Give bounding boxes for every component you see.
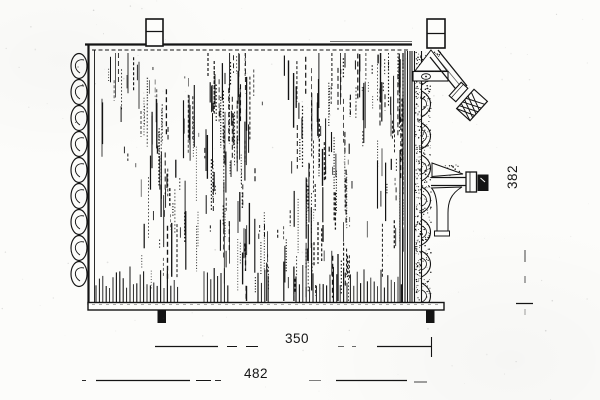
top-right-mounting-bracket <box>427 19 445 48</box>
mounting-peg-left <box>158 310 167 323</box>
bottom-mounting-plate <box>88 303 444 311</box>
dimension-core-width: 350 <box>155 331 432 357</box>
top-left-mounting-bracket <box>146 19 163 46</box>
technical-drawing-canvas: 350 482 382 <box>0 0 600 400</box>
condenser-drawing: 350 482 382 <box>0 0 600 400</box>
right-tube-band <box>400 51 412 302</box>
pipe-connector-cap <box>478 175 489 192</box>
dimension-height: 382 <box>505 165 533 315</box>
dimension-label-350: 350 <box>285 331 309 346</box>
core-fin-texture <box>102 53 403 304</box>
top-right-pipe-fitting <box>413 50 487 121</box>
left-fin-coil-edge <box>71 54 87 287</box>
condenser-core-outline <box>85 42 412 306</box>
dimension-overall-width: 482 <box>82 366 427 382</box>
core-bottom-fin-comb <box>96 265 401 302</box>
pipe-connector-collar <box>466 172 477 192</box>
dimension-label-382: 382 <box>505 165 520 189</box>
tank-scallop-edge <box>422 59 431 309</box>
mounting-peg-right <box>426 310 435 323</box>
side-pipe-fitting <box>431 163 489 236</box>
dimension-label-482: 482 <box>244 366 268 381</box>
